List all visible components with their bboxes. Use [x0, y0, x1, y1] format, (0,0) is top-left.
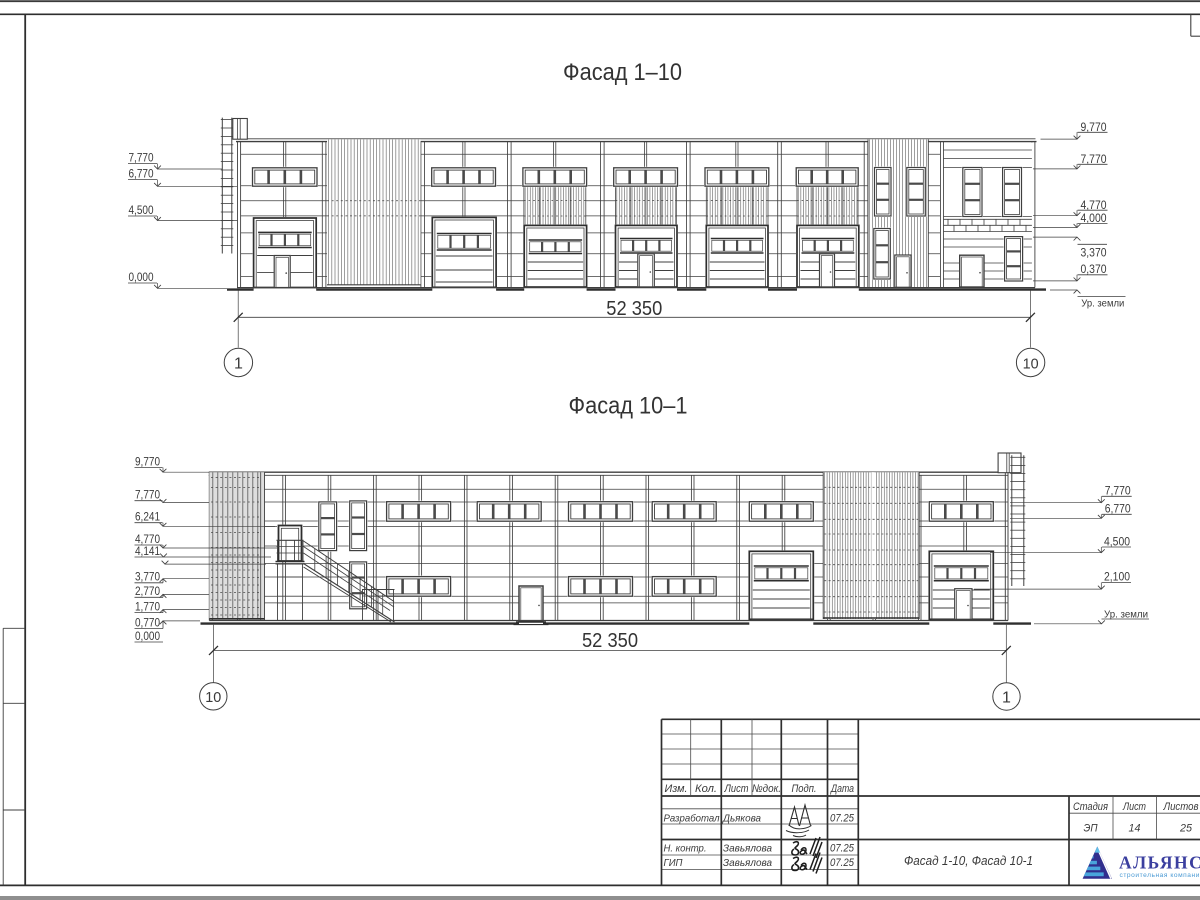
svg-text:6,770: 6,770 — [129, 169, 154, 181]
svg-text:52 350: 52 350 — [606, 297, 662, 320]
svg-text:Кол.: Кол. — [695, 783, 717, 795]
svg-text:Завьялова: Завьялова — [723, 857, 772, 869]
svg-text:Разработал: Разработал — [664, 813, 720, 825]
svg-text:52 350: 52 350 — [582, 629, 638, 652]
svg-text:ГИП: ГИП — [664, 857, 683, 869]
svg-text:6,241: 6,241 — [135, 512, 160, 524]
svg-text:Дата: Дата — [829, 783, 854, 795]
svg-text:10: 10 — [1023, 356, 1039, 373]
svg-text:4,141: 4,141 — [135, 546, 160, 558]
svg-text:9,770: 9,770 — [135, 456, 160, 468]
svg-text:0,000: 0,000 — [135, 631, 160, 643]
svg-text:Фасад 1-10, Фасад 10-1: Фасад 1-10, Фасад 10-1 — [904, 854, 1033, 868]
svg-text:2,770: 2,770 — [135, 586, 160, 598]
svg-text:0,770: 0,770 — [135, 617, 160, 629]
svg-text:2,100: 2,100 — [1104, 572, 1130, 584]
svg-text:Изм.: Изм. — [665, 783, 688, 795]
svg-text:4,500: 4,500 — [1104, 536, 1130, 548]
svg-text:3,370: 3,370 — [1081, 248, 1107, 260]
svg-text:7,770: 7,770 — [129, 153, 154, 165]
svg-text:АЛЬЯНС: АЛЬЯНС — [1119, 853, 1200, 873]
svg-text:25: 25 — [1179, 823, 1193, 835]
svg-text:1: 1 — [234, 356, 243, 373]
svg-text:Фасад 1–10: Фасад 1–10 — [563, 59, 682, 86]
svg-text:10: 10 — [205, 689, 221, 706]
svg-text:Лист: Лист — [1122, 801, 1146, 813]
svg-text:Фасад 10–1: Фасад 10–1 — [569, 393, 688, 420]
svg-text:№док.: №док. — [752, 783, 781, 795]
svg-text:Лист: Лист — [724, 783, 749, 795]
svg-text:1,770: 1,770 — [135, 602, 160, 614]
svg-text:строительная компания: строительная компания — [1120, 872, 1200, 879]
svg-text:Подп.: Подп. — [792, 783, 817, 795]
svg-text:07.25: 07.25 — [830, 843, 855, 855]
svg-text:Стадия: Стадия — [1073, 801, 1108, 813]
svg-text:0,000: 0,000 — [129, 272, 154, 284]
svg-text:Листов: Листов — [1163, 801, 1199, 813]
svg-text:Н. контр.: Н. контр. — [664, 843, 707, 855]
svg-text:14: 14 — [1129, 823, 1141, 835]
svg-text:Дьякова: Дьякова — [722, 813, 761, 825]
svg-text:7,770: 7,770 — [135, 490, 160, 502]
svg-text:Ур. земли: Ур. земли — [1081, 298, 1124, 310]
svg-text:4,770: 4,770 — [135, 534, 160, 546]
svg-text:ЭП: ЭП — [1084, 823, 1098, 835]
svg-text:Завьялова: Завьялова — [723, 843, 772, 855]
svg-text:0,370: 0,370 — [1081, 264, 1107, 276]
svg-text:07.25: 07.25 — [830, 857, 855, 869]
svg-text:07.25: 07.25 — [830, 813, 855, 825]
svg-text:1: 1 — [1002, 689, 1011, 706]
svg-text:3,770: 3,770 — [135, 572, 160, 584]
svg-text:4,500: 4,500 — [129, 205, 154, 217]
